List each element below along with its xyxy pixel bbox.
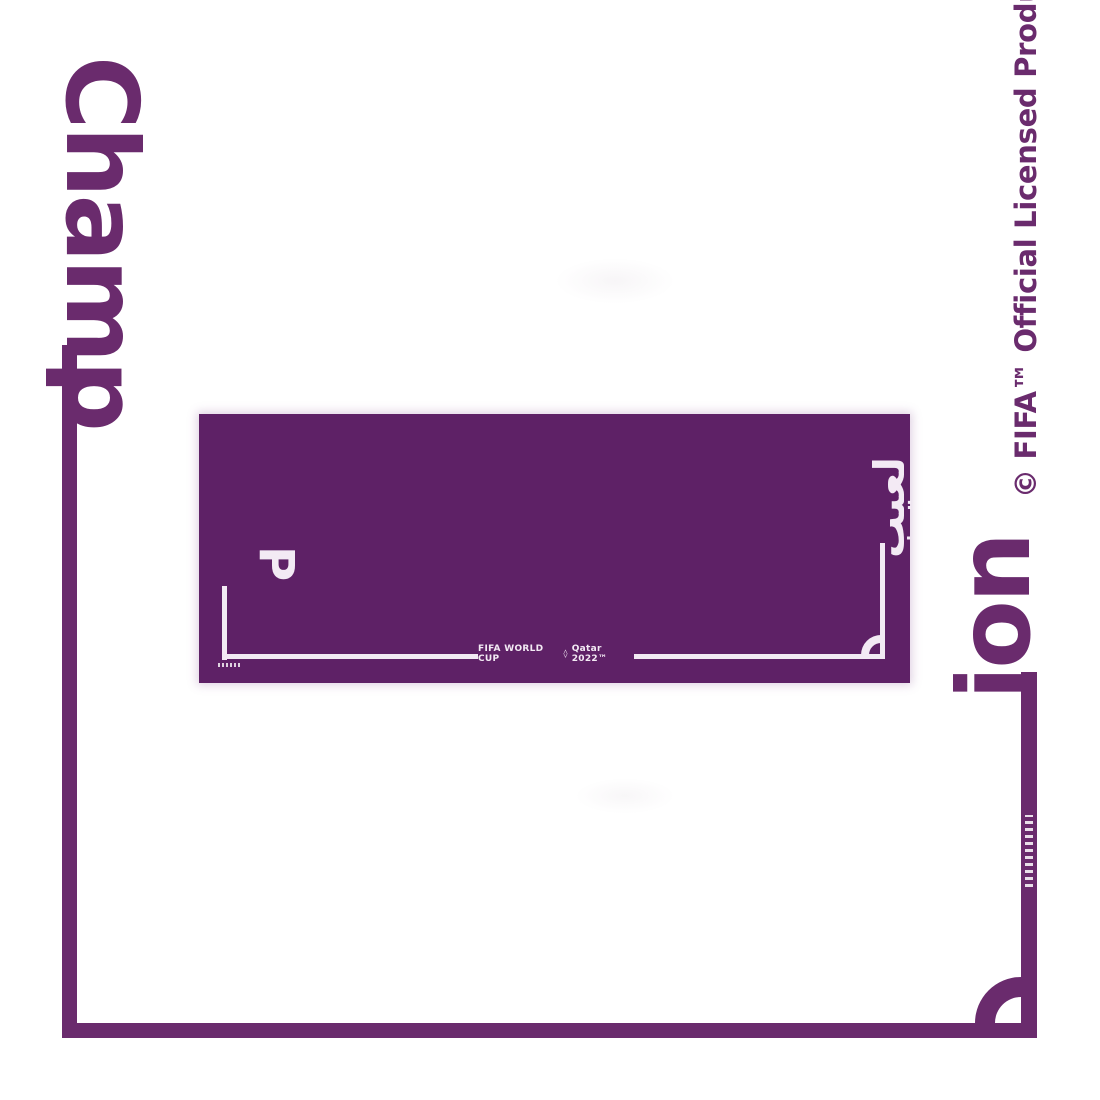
frame-line-left [62,345,77,1038]
fifa-wordmark-left: FIFA WORLD CUP [478,644,559,664]
letter-bowl-ornament [975,977,1021,1023]
towel-letter-p: P [252,546,300,581]
frame-line-micro-text [1025,815,1033,887]
towel-letter-bowl-ornament [861,635,881,655]
fabric-smudge [555,258,675,304]
product-photo-canvas: Champ ion © FIFA™ Official Licensed Prod… [0,0,1100,1100]
license-notice: © FIFA™ Official Licensed Product. [1008,0,1044,498]
towel-line-bottom-left [222,654,478,659]
fabric-smudge [575,778,675,814]
towel-line-left [222,586,227,660]
fifa-wordmark-right: Qatar 2022™ [572,644,634,664]
towel-product: P FIFA WORLD CUP ◊ Qatar 2022™ لعيب [199,414,910,683]
trophy-mark-icon: ◊ [563,650,567,658]
towel-arabic-word: لعيب [868,457,912,558]
frame-line-bottom [62,1023,1037,1038]
fifa-wordmark: FIFA WORLD CUP ◊ Qatar 2022™ [478,647,634,661]
towel-line-bottom-right [634,654,885,659]
towel-micro-label [218,663,241,667]
